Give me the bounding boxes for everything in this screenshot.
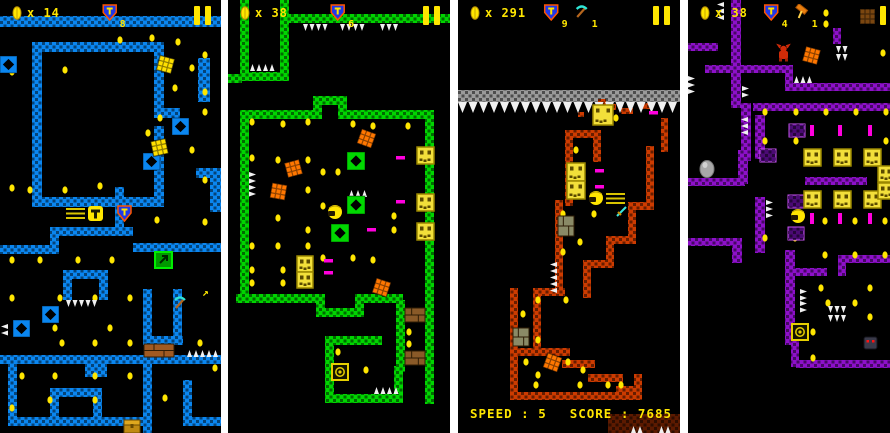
maze-wall-texture	[143, 289, 152, 339]
pellet	[565, 358, 570, 365]
maze-wall-texture	[738, 150, 748, 184]
projectile	[595, 169, 604, 173]
pellet	[882, 217, 887, 224]
pellet	[793, 108, 798, 115]
enemy-block	[567, 163, 585, 181]
pellet	[823, 108, 828, 115]
pellet	[62, 66, 67, 73]
pellet	[202, 108, 207, 115]
pellet	[97, 182, 102, 189]
pellet	[189, 146, 194, 153]
player-character	[589, 191, 625, 205]
enemy-block	[834, 149, 851, 166]
maze-wall-texture	[338, 110, 434, 119]
boulder	[700, 161, 714, 178]
projectile	[868, 213, 872, 224]
coin-icon	[470, 6, 480, 20]
spike-box	[172, 118, 189, 135]
spike-box	[347, 196, 365, 214]
pellet	[275, 156, 280, 163]
hud: x 291 9 1	[458, 0, 680, 34]
maze-wall-texture	[154, 42, 164, 114]
pellet	[154, 216, 159, 223]
spike-row	[828, 306, 846, 313]
shield-icon	[102, 4, 117, 21]
pellet	[591, 210, 596, 217]
pellet	[853, 108, 858, 115]
pellet	[883, 137, 888, 144]
spike-box	[331, 224, 349, 242]
pellet	[59, 339, 64, 346]
projectile	[838, 125, 842, 136]
maze-wall-texture	[396, 300, 405, 372]
maze-wall-texture	[210, 178, 221, 212]
maze-wall-texture	[236, 294, 318, 303]
pellet	[762, 234, 767, 241]
projectile	[838, 213, 842, 224]
pellet	[305, 118, 310, 125]
pellet	[52, 324, 57, 331]
spike-row	[66, 300, 97, 307]
panel-divider	[450, 0, 458, 433]
turret-block	[792, 324, 808, 340]
spike-row	[766, 200, 773, 218]
crate	[357, 129, 376, 148]
maze-wall-texture	[0, 245, 57, 254]
pellet	[280, 266, 285, 273]
pellet	[47, 396, 52, 403]
pellet	[762, 108, 767, 115]
game-panel-2: x 38 6	[228, 0, 450, 433]
player-character	[66, 206, 103, 221]
brick-block	[513, 328, 529, 346]
pellet	[92, 372, 97, 379]
maze-wall-texture	[355, 294, 403, 303]
purple-block	[760, 149, 776, 162]
pellet	[535, 296, 540, 303]
pellet	[107, 324, 112, 331]
shield-indicator: 8	[102, 4, 118, 22]
projectile	[367, 228, 376, 232]
brick-block	[405, 351, 425, 365]
enemy-block	[417, 223, 434, 240]
pellet	[618, 381, 623, 388]
enemy-block	[834, 191, 851, 208]
maze-wall-texture	[705, 65, 790, 73]
maze-wall-texture	[583, 260, 591, 298]
pellet	[523, 358, 528, 365]
pellet	[810, 328, 815, 335]
coin-icon	[12, 6, 22, 20]
pellet	[852, 299, 857, 306]
spike-row	[828, 315, 846, 322]
pellet	[249, 118, 254, 125]
maze-wall-texture	[240, 72, 289, 81]
enemy-block	[804, 149, 821, 166]
pause-button[interactable]	[423, 6, 440, 25]
pellet	[9, 404, 14, 411]
pellet	[75, 256, 80, 263]
pellet	[162, 394, 167, 401]
pause-button[interactable]	[880, 6, 890, 25]
pellet	[202, 51, 207, 58]
tool-indicator: 1	[794, 4, 810, 22]
maze-wall-texture	[458, 90, 680, 102]
pellet	[520, 310, 525, 317]
pellet	[52, 372, 57, 379]
crate	[802, 46, 820, 64]
pellet	[305, 242, 310, 249]
brick-block	[405, 308, 425, 322]
crate	[156, 55, 174, 73]
pellet	[92, 339, 97, 346]
hud: x 14 8	[0, 0, 221, 34]
projectile	[810, 213, 814, 224]
shield-icon	[764, 4, 779, 21]
pellet	[197, 339, 202, 346]
exit-arrow-icon: ↗	[202, 286, 209, 299]
maze-wall-texture	[316, 308, 358, 317]
maze-wall-texture	[796, 360, 890, 368]
pellet	[127, 294, 132, 301]
pellet	[563, 296, 568, 303]
crate	[151, 139, 169, 157]
shield-count: 8	[120, 19, 126, 30]
shield-count: 9	[562, 19, 568, 30]
pellet	[275, 242, 280, 249]
pellet	[127, 372, 132, 379]
maze-wall-texture	[196, 168, 221, 178]
enemy-block	[297, 272, 313, 288]
pellet	[605, 381, 610, 388]
pellet	[149, 34, 154, 41]
dark-enemy	[864, 337, 877, 349]
maze-wall-texture	[588, 374, 623, 382]
pickaxe-icon	[574, 4, 590, 20]
maze-wall-texture	[646, 146, 654, 208]
coin-icon	[700, 6, 710, 20]
pellet	[822, 251, 827, 258]
maze-canvas[interactable]	[458, 0, 680, 433]
hud: x 38 4 1	[688, 0, 890, 34]
purple-block	[789, 124, 805, 137]
coin-count: x 291	[485, 6, 526, 20]
speed-label: SPEED : 5	[470, 406, 547, 421]
pellet	[335, 348, 340, 355]
maze-wall-texture	[240, 110, 320, 119]
enemy-block	[297, 256, 313, 272]
purple-block	[788, 227, 804, 240]
enemy-block	[878, 166, 890, 182]
maze-wall-texture	[57, 227, 133, 236]
maze-wall-texture	[688, 43, 718, 51]
enemy-block	[417, 194, 434, 211]
tool-count: 1	[812, 19, 818, 30]
pellet	[9, 294, 14, 301]
pellet	[202, 88, 207, 95]
pellet	[27, 186, 32, 193]
pellet	[852, 217, 857, 224]
projectile	[868, 125, 872, 136]
score-label: SCORE : 7685	[570, 406, 672, 421]
enemy-block	[878, 183, 890, 199]
shield-indicator: 9	[544, 4, 560, 22]
pause-bar	[880, 6, 886, 25]
pellet	[305, 156, 310, 163]
panel-divider	[680, 0, 688, 433]
pellet	[109, 256, 114, 263]
shield-icon	[544, 4, 559, 21]
maze-wall-texture	[325, 394, 403, 403]
coin-icon	[240, 6, 250, 20]
pellet	[370, 256, 375, 263]
maze-wall-texture	[93, 388, 102, 420]
pellet	[37, 256, 42, 263]
crate	[284, 159, 302, 177]
maze-canvas[interactable]	[228, 0, 450, 433]
player-character	[328, 205, 342, 219]
treasure-chest	[124, 420, 140, 433]
pellet	[391, 226, 396, 233]
pellet	[92, 396, 97, 403]
enemy-block	[804, 191, 821, 208]
pellet	[405, 122, 410, 129]
spike-row	[1, 324, 8, 336]
pellet	[613, 114, 618, 121]
pause-bar	[653, 6, 659, 25]
pellet	[9, 256, 14, 263]
maze-canvas[interactable]: ↗	[0, 0, 221, 433]
maze-wall-texture	[143, 362, 152, 433]
shield-indicator: 4	[764, 4, 780, 22]
enemy-block	[593, 105, 613, 125]
spike-box	[13, 320, 30, 337]
screenshot-strip: ↗ x 14 8	[0, 0, 890, 433]
brick-block	[558, 216, 574, 236]
pellet	[867, 313, 872, 320]
coin-count: x 14	[27, 6, 60, 20]
brick-block	[144, 344, 174, 357]
pellet	[577, 381, 582, 388]
spike-box	[42, 306, 59, 323]
pellet	[406, 340, 411, 347]
maze-wall-texture	[425, 294, 434, 404]
pellet	[577, 238, 582, 245]
hud-footer: SPEED : 5 SCORE : 7685	[470, 406, 672, 421]
pellet	[535, 336, 540, 343]
projectile	[324, 271, 333, 275]
pellet	[117, 36, 122, 43]
enemy-block	[864, 149, 881, 166]
maze-wall-texture	[805, 177, 867, 185]
pellet	[202, 218, 207, 225]
game-panel-3: x 291 9 1	[458, 0, 680, 433]
pellet	[573, 146, 578, 153]
maze-wall-texture	[732, 238, 742, 263]
maze-wall-texture	[8, 363, 17, 423]
coin-counter: x 14	[12, 6, 60, 20]
spike-row	[800, 301, 807, 313]
maze-wall-texture	[688, 178, 745, 186]
spike-box	[347, 152, 365, 170]
pellet	[822, 217, 827, 224]
sword-pickup	[617, 207, 626, 216]
pellet	[249, 154, 254, 161]
pause-bar	[423, 6, 429, 25]
maze-wall-texture	[785, 83, 890, 91]
spike-row	[741, 117, 748, 135]
maze-wall-texture	[99, 270, 108, 300]
turret-block	[332, 364, 348, 380]
pellet	[305, 226, 310, 233]
maze-wall-texture	[183, 380, 192, 426]
maze-wall-texture	[198, 58, 210, 102]
game-panel-4: x 38 4 1	[688, 0, 890, 433]
maze-wall-texture	[785, 268, 827, 276]
maze-wall-texture	[32, 42, 42, 207]
pellet	[335, 168, 340, 175]
maze-wall-texture	[593, 130, 601, 162]
spike-row	[794, 76, 812, 83]
pellet	[172, 84, 177, 91]
pellet	[249, 242, 254, 249]
maze-wall-texture	[634, 374, 642, 400]
maze-wall-texture	[394, 366, 403, 403]
shield-icon	[330, 4, 345, 21]
maze-wall-texture	[661, 118, 668, 152]
coin-counter: x 291	[470, 6, 526, 20]
pellet	[320, 168, 325, 175]
pellet	[202, 176, 207, 183]
crate	[270, 183, 287, 200]
shield-indicator: 6	[330, 4, 346, 22]
maze-wall-texture	[228, 74, 242, 83]
enemy-block	[417, 147, 434, 164]
pellet	[145, 129, 150, 136]
pellet	[535, 371, 540, 378]
maze-wall-texture	[838, 255, 846, 276]
maze-wall-texture	[578, 112, 584, 117]
pellet	[9, 184, 14, 191]
pause-bar	[664, 6, 670, 25]
panel-divider	[221, 0, 228, 433]
pellet	[127, 339, 132, 346]
pause-button[interactable]	[653, 6, 670, 25]
projectile	[396, 200, 405, 204]
pellet	[810, 354, 815, 361]
maze-canvas[interactable]	[688, 0, 890, 433]
coin-counter: x 38	[240, 6, 288, 20]
pellet	[762, 137, 767, 144]
spike-row	[800, 289, 807, 301]
maze-wall-texture	[32, 197, 164, 207]
pellet	[175, 38, 180, 45]
hammer-icon	[794, 4, 810, 20]
pellet	[350, 254, 355, 261]
exit-door	[155, 252, 172, 268]
pellet	[62, 186, 67, 193]
pellet	[212, 364, 217, 371]
pellet	[882, 251, 887, 258]
pellet	[280, 279, 285, 286]
pellet	[370, 122, 375, 129]
maze-wall-texture	[32, 42, 164, 52]
pellet	[883, 108, 888, 115]
pellet	[249, 266, 254, 273]
spike-row	[250, 64, 275, 71]
pellet	[189, 64, 194, 71]
pellet	[280, 120, 285, 127]
pellet	[19, 372, 24, 379]
pellet	[533, 381, 538, 388]
maze-wall-texture	[50, 388, 59, 420]
coin-counter: x 38	[700, 6, 748, 20]
coin-count: x 38	[715, 6, 748, 20]
hud: x 38 6	[228, 0, 450, 34]
shield-count: 6	[348, 19, 354, 30]
projectile	[810, 125, 814, 136]
pellet	[825, 299, 830, 306]
spike-row	[249, 172, 256, 197]
pellet	[275, 214, 280, 221]
pause-bar	[434, 6, 440, 25]
spike-row	[836, 46, 848, 53]
pause-bar	[205, 6, 211, 25]
player-character	[791, 209, 805, 223]
pellet	[560, 248, 565, 255]
maze-wall-texture	[753, 103, 890, 111]
pellet	[350, 120, 355, 127]
purple-block	[788, 195, 804, 208]
pellet	[57, 294, 62, 301]
pellet	[363, 366, 368, 373]
tool-indicator: 1	[574, 4, 590, 22]
pellet	[305, 186, 310, 193]
projectile	[396, 156, 405, 160]
enemy-block	[567, 181, 585, 199]
pellet	[880, 49, 885, 56]
pellet	[391, 212, 396, 219]
game-panel-1: ↗ x 14 8	[0, 0, 221, 433]
projectile	[649, 111, 658, 115]
pellet	[818, 284, 823, 291]
projectile	[324, 259, 333, 263]
spike-row	[688, 76, 695, 94]
maze-wall-texture	[755, 197, 765, 253]
maze-wall-texture	[63, 270, 72, 300]
pellet	[249, 279, 254, 286]
pause-bar	[194, 6, 200, 25]
pellet	[406, 328, 411, 335]
spike-box	[0, 56, 17, 73]
pellet	[852, 251, 857, 258]
maze-wall-texture	[240, 110, 249, 302]
maze-wall-texture	[133, 243, 221, 252]
spike-row	[836, 54, 848, 61]
pellet	[867, 284, 872, 291]
pellet	[320, 202, 325, 209]
projectile	[595, 185, 604, 189]
coin-count: x 38	[255, 6, 288, 20]
tool-count: 1	[592, 19, 598, 30]
demon-enemy	[778, 45, 789, 62]
shield-count: 4	[782, 19, 788, 30]
pellet	[793, 137, 798, 144]
pellet	[157, 114, 162, 121]
pause-button[interactable]	[194, 6, 211, 25]
spike-row	[742, 86, 749, 98]
pellet	[580, 366, 585, 373]
